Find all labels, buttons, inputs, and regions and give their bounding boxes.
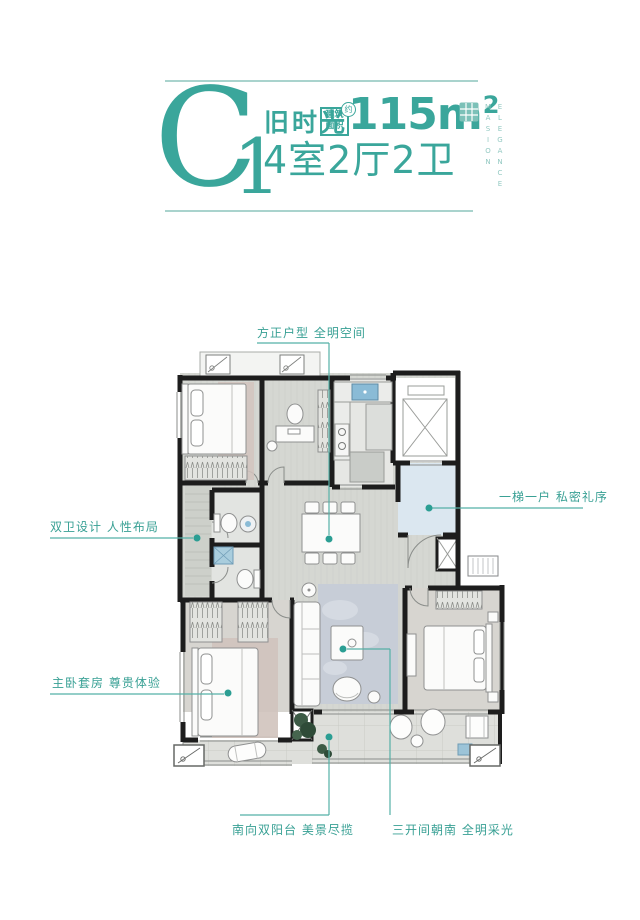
exterior-window-box: [468, 556, 498, 576]
annotation-left-upper: 双卫设计 人性布局: [50, 520, 159, 534]
annotation-top: 方正户型 全明空间: [257, 325, 366, 340]
floorplan-page: C 1 旧时光 建筑 面积 约 115m2 4室2厅2卫 ELEGANCE MA…: [0, 0, 640, 920]
floor-plan: 方正户型 全明空间 一梯一户 私密礼序 双卫设计 人性布局 主卧套房 尊贵体验 …: [0, 0, 640, 920]
annotation-right: 一梯一户 私密礼序: [499, 489, 608, 504]
dining-furniture: [302, 502, 360, 564]
utility-shaft: [437, 538, 458, 570]
bedroom-north-furniture: [182, 382, 254, 480]
annotation-bottom-right: 三开间朝南 全明采光: [392, 822, 514, 837]
bay-window-strip: [200, 352, 320, 377]
annotation-left-lower: 主卧套房 尊贵体验: [52, 675, 161, 690]
annotation-bottom-left: 南向双阳台 美景尽揽: [232, 822, 354, 837]
